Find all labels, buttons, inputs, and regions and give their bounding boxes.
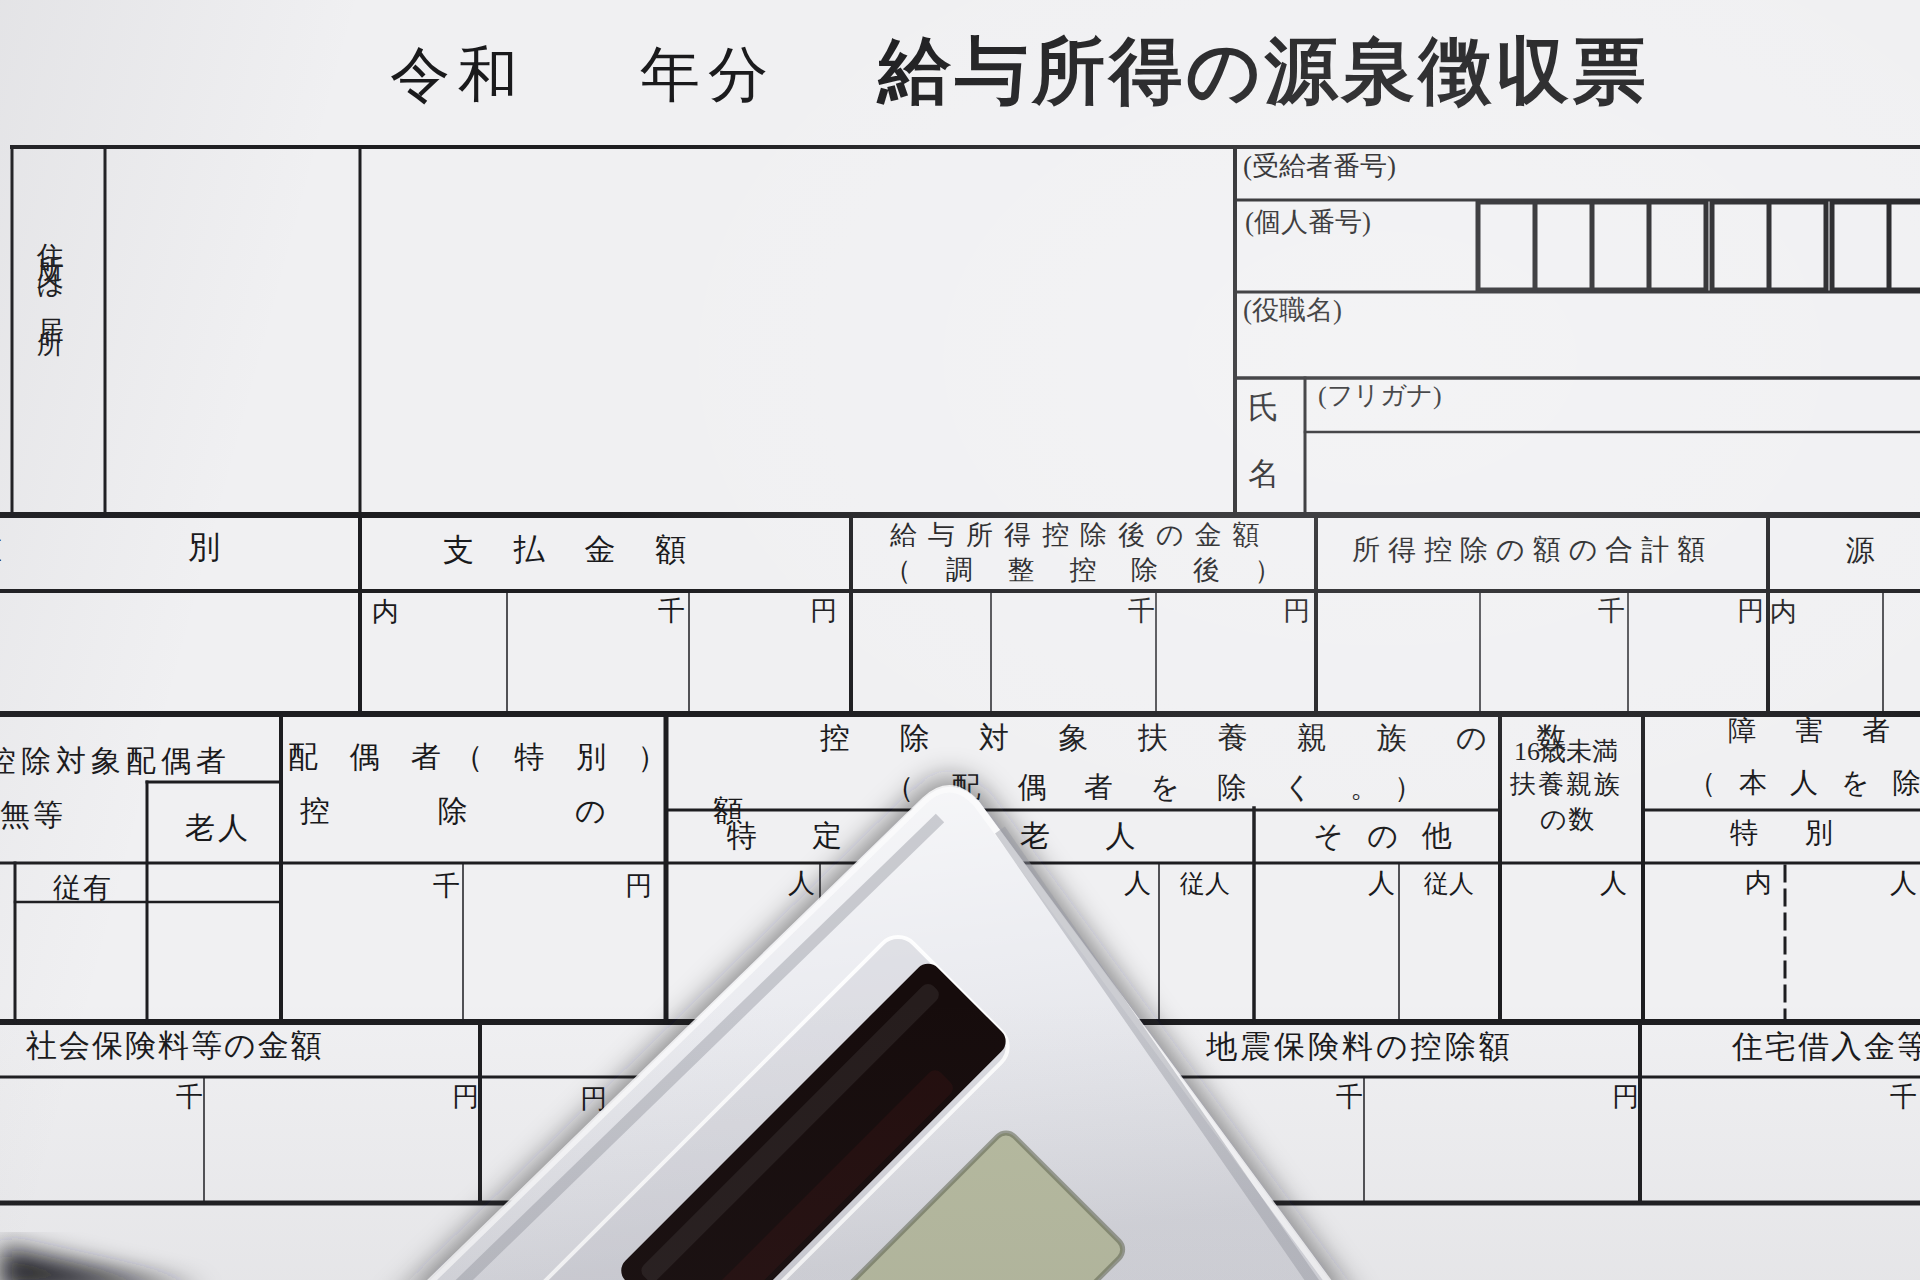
sen-marker-social: 千	[176, 1083, 203, 1111]
after-deduction-header-2: （ 調 整 控 除 後 ）	[884, 556, 1296, 584]
solar-panel-tint	[702, 1067, 957, 1280]
uchi-marker-disability: 内	[1745, 869, 1772, 897]
deduction-total-header: 所得控除の額の合計額	[1352, 535, 1713, 564]
recipient-number-label: (受給者番号)	[1243, 152, 1396, 180]
dependents-specified-label: 特 定	[727, 820, 867, 852]
calculator-body-sheen	[418, 787, 1338, 1280]
dependents-count-header-2: （ 配 偶 者 を 除 く 。）	[885, 772, 1438, 802]
spouse-juyu-label: 従有	[53, 873, 113, 902]
calculator-body	[418, 787, 1338, 1280]
dependents-elderly-label: 老 人	[1020, 820, 1160, 852]
nin-marker-disability: 人	[1890, 869, 1917, 897]
spouse-special-header-2: 控 除 の 額	[300, 795, 793, 827]
calculator-edge-highlight	[430, 789, 1330, 1280]
address-label: 住所又は居所	[36, 222, 64, 319]
dependents-other-label: そ の 他	[1313, 820, 1459, 852]
tax-form-photo: 令和 年分 給与所得の源泉徴収票 住所又は居所 (受給者番号) (個人番号) (…	[0, 0, 1920, 1280]
page-title: 給与所得の源泉徴収票	[878, 34, 1650, 111]
payment-amount-header: 支 払 金 額	[443, 534, 702, 567]
title-year-suffix: 年分	[640, 44, 776, 107]
sen-marker-spouse-amount: 千	[433, 872, 460, 900]
nin-marker-under16: 人	[1600, 869, 1627, 897]
lcd-screen	[780, 1128, 1128, 1280]
en-marker-social: 円	[452, 1083, 479, 1111]
solar-panel	[615, 958, 1011, 1280]
withholding-header-partial: 源 泉	[1846, 535, 1920, 565]
under16-label-3: の数	[1540, 806, 1597, 833]
spouse-elderly-label: 老人	[185, 812, 251, 844]
en-marker-dedtotal: 円	[1737, 597, 1764, 625]
solar-panel-gloss	[638, 981, 942, 1280]
name-label-mei: 名	[1248, 458, 1279, 491]
under16-label-1: 16歳未満	[1514, 738, 1618, 765]
earthquake-insurance-header: 地震保険料の控除額	[1206, 1031, 1513, 1064]
personal-number-label: (個人番号)	[1245, 208, 1371, 236]
disability-header-2: （ 本 人 を 除 く	[1688, 768, 1920, 797]
type-label-partial: 種	[0, 531, 2, 565]
calculator-shadow	[418, 787, 1338, 1280]
en-marker-spouse-amount: 円	[625, 872, 652, 900]
desk-corner-shadow	[0, 1246, 205, 1280]
under16-label-2: 扶養親族	[1510, 771, 1622, 798]
en-marker-afterded: 円	[1283, 597, 1310, 625]
junin-marker-elderly: 従人	[1180, 871, 1230, 897]
sen-marker-dedtotal: 千	[1598, 597, 1625, 625]
spouse-header-partial: 控除対象配偶者	[0, 745, 231, 777]
job-title-label: (役職名)	[1243, 296, 1342, 324]
nin-marker-specified: 人	[788, 869, 815, 897]
furigana-label: (フリガナ)	[1318, 382, 1442, 409]
en-marker-life: 円	[580, 1085, 607, 1113]
en-marker-payment: 円	[810, 597, 837, 625]
title-era: 令和	[390, 44, 526, 107]
dependents-count-header-1: 控 除 対 象 扶 養 親 族 の 数	[820, 722, 1587, 754]
sen-marker-afterded: 千	[1128, 597, 1155, 625]
uchi-marker-payment: 内	[372, 598, 399, 626]
social-insurance-header: 社会保険料等の金額	[26, 1030, 324, 1063]
housing-loan-header-partial: 住宅借入金等	[1732, 1031, 1920, 1064]
sen-marker-payment: 千	[658, 597, 685, 625]
spouse-special-header-1: 配 偶 者（ 特 別 ）	[288, 741, 680, 773]
nin-marker-elderly: 人	[1124, 869, 1151, 897]
disability-header-1: 障 害 者 の	[1728, 716, 1920, 745]
uchi-marker-withholding: 内	[1770, 598, 1797, 626]
sen-marker-housing: 千	[1890, 1083, 1917, 1111]
spouse-mutou-label: 無等	[0, 799, 66, 831]
after-deduction-header-1: 給与所得控除後の金額	[890, 521, 1271, 549]
type-label: 別	[188, 531, 220, 565]
disability-special-label: 特 別	[1730, 818, 1853, 847]
junin-marker-other: 従人	[1424, 871, 1474, 897]
name-label-shi: 氏	[1248, 392, 1279, 425]
sen-marker-earthquake: 千	[1336, 1083, 1363, 1111]
nin-marker-other: 人	[1368, 869, 1395, 897]
en-marker-earthquake: 円	[1612, 1083, 1639, 1111]
